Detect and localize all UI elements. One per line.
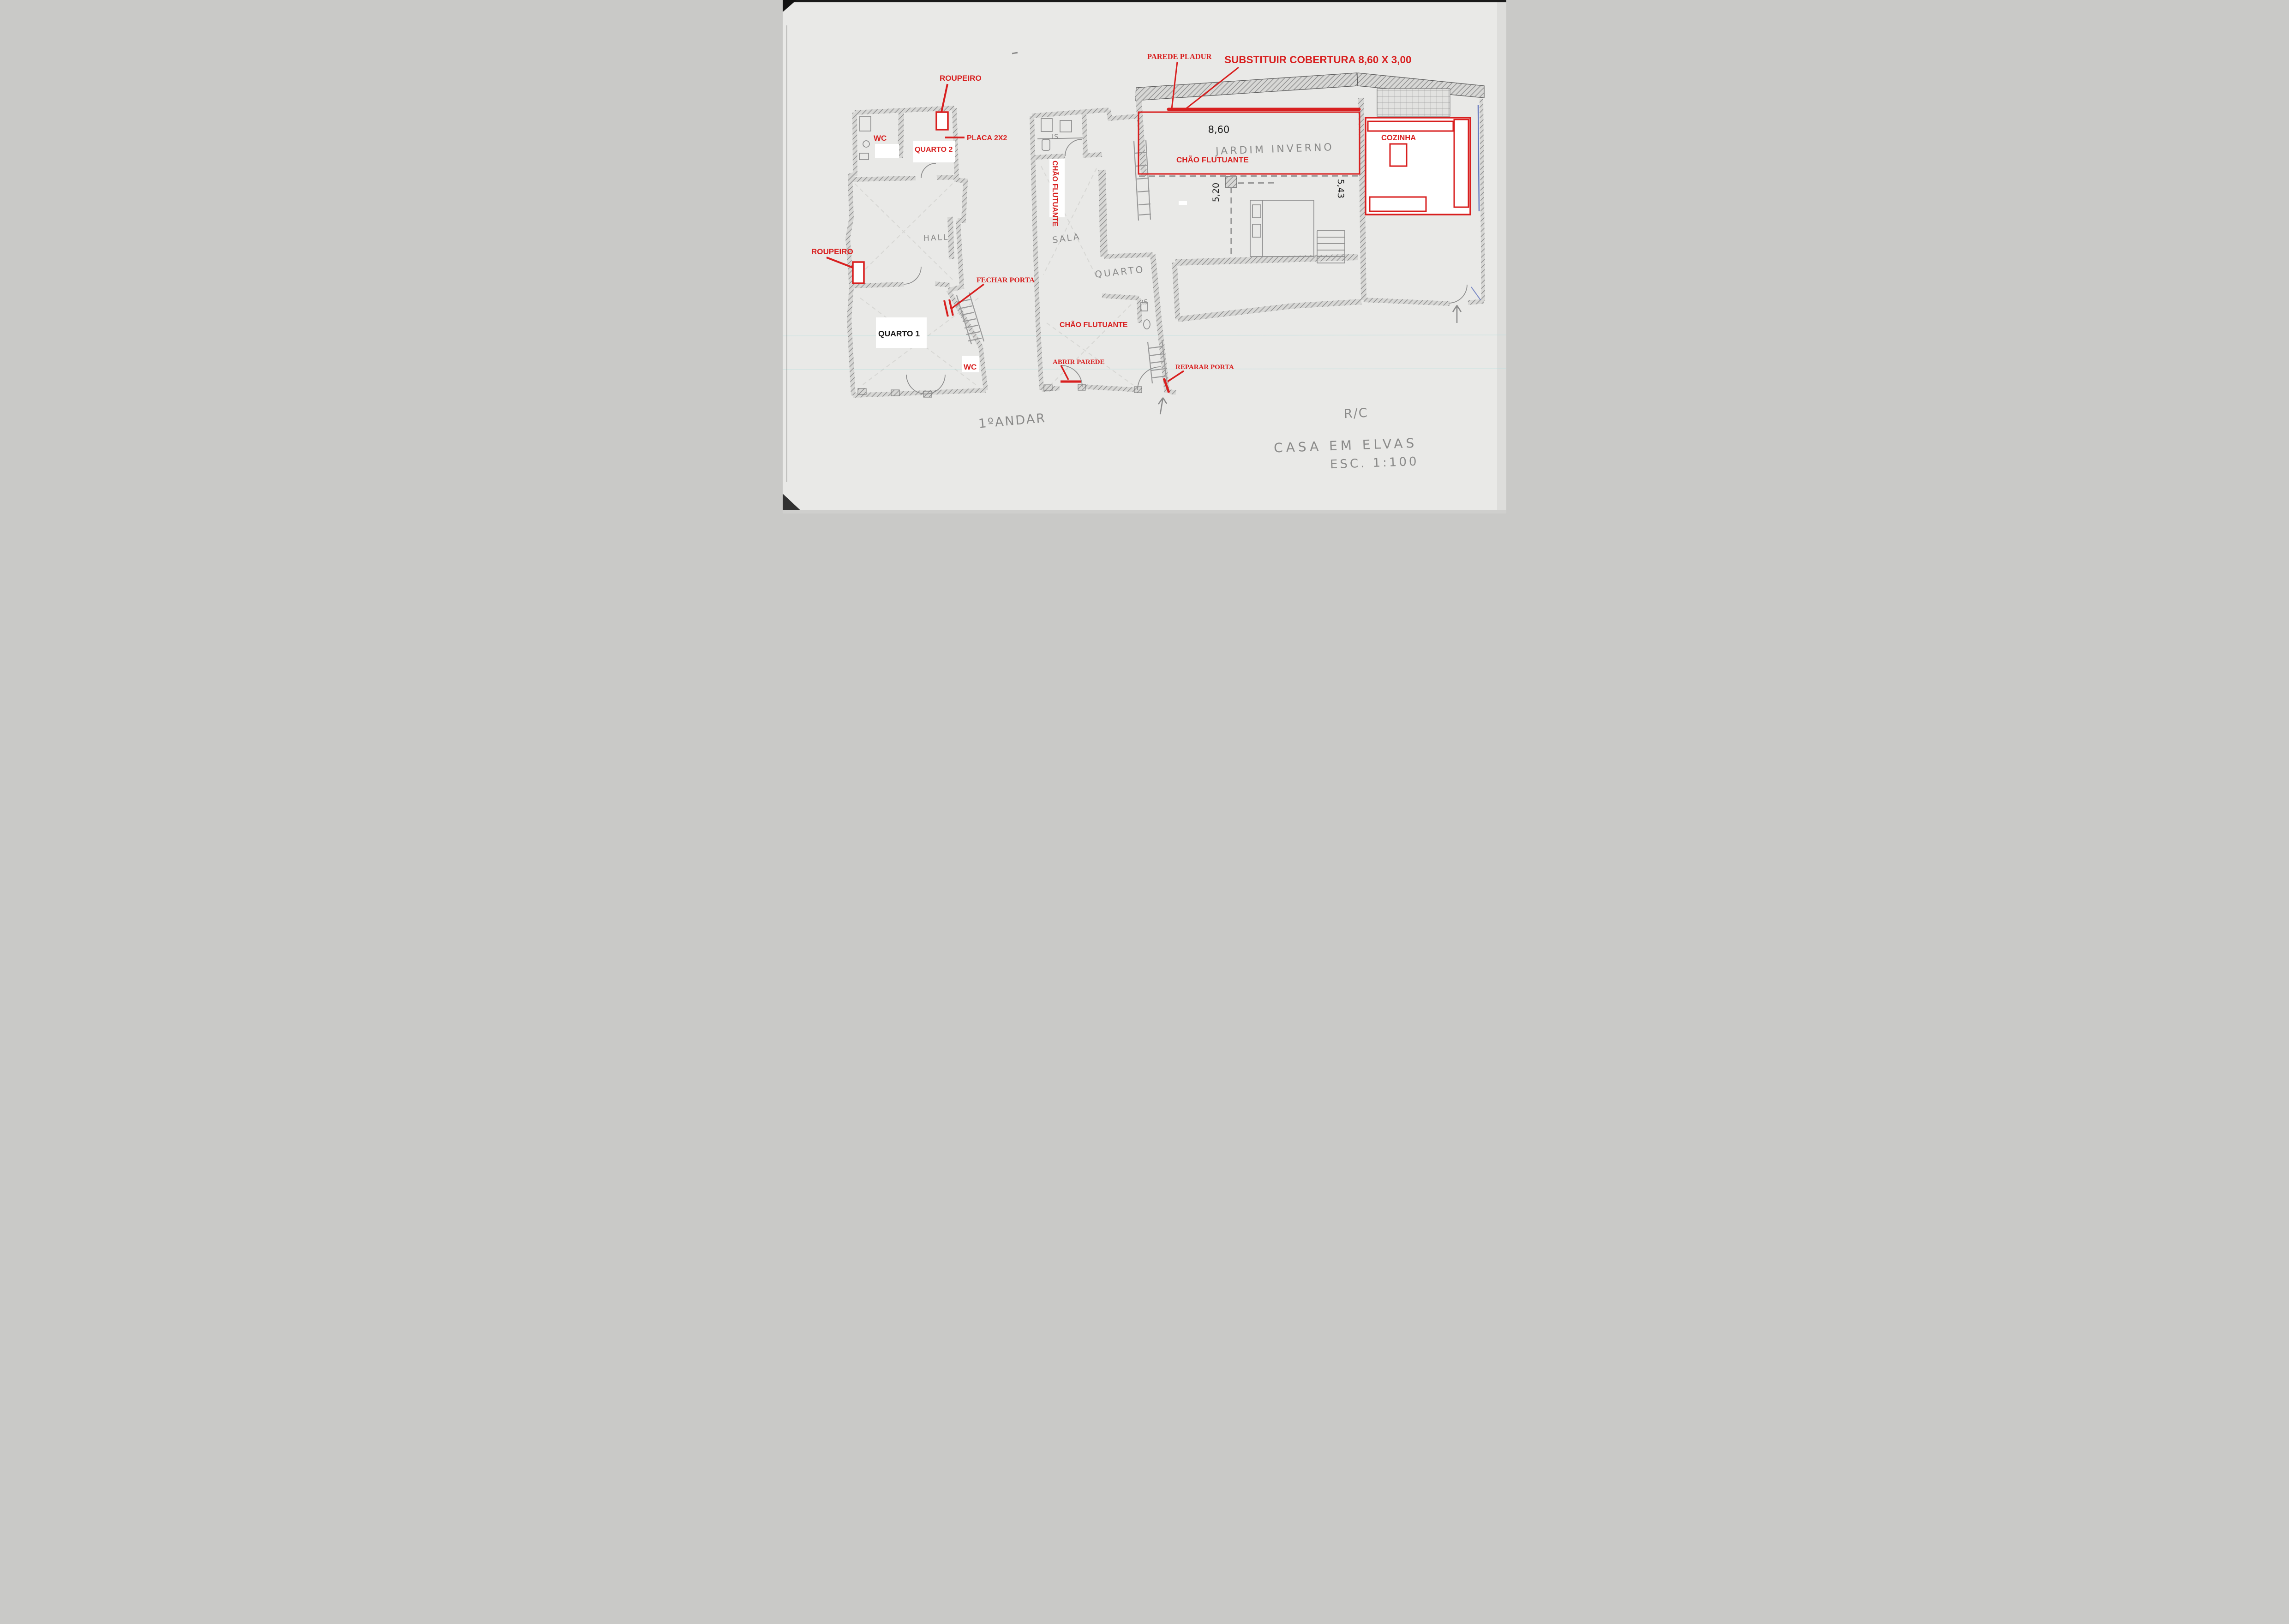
roupeiro-left-box	[853, 262, 864, 283]
hall-label: HALL	[923, 233, 949, 243]
quarto1-label: QUARTO 1	[878, 329, 920, 338]
wc-lower-label: WC	[964, 363, 977, 371]
chao-flutuante-jardim-label: CHÃO FLUTUANTE	[1176, 155, 1249, 164]
reparar-porta-label: REPARAR PORTA	[1175, 364, 1234, 371]
chao-flutuante-room-label: CHÃO FLUTUANTE	[1060, 320, 1128, 329]
is-mid-label: IS	[1141, 299, 1148, 307]
ground-title: R/C	[1343, 406, 1368, 422]
paper-right-edge	[1497, 0, 1506, 513]
roupeiro-top-label: ROUPEIRO	[940, 74, 982, 83]
abrir-parede-label: ABRIR PAREDE	[1053, 358, 1105, 366]
pencil-column	[1225, 177, 1237, 187]
parede-pladur-label: PAREDE PLADUR	[1147, 52, 1212, 61]
scanned-floor-plan-sketch: HALL IS SALA QUARTO IS JARDIM INVERNO 1º…	[783, 0, 1506, 513]
dim-8-60: 8,60	[1208, 124, 1230, 135]
roupeiro-top-box	[936, 112, 948, 130]
roupeiro-left-label: ROUPEIRO	[811, 247, 853, 256]
chao-flutuante-corridor-label: CHÃO FLUTUANTE	[1051, 161, 1059, 227]
wc-upper-label: WC	[874, 134, 887, 143]
pencil-tick-mark	[1012, 53, 1018, 54]
terrace-grid-area	[1377, 89, 1450, 116]
substituir-cobertura-label: SUBSTITUIR COBERTURA 8,60 X 3,00	[1224, 54, 1412, 66]
dim-5-43: 5,43	[1336, 179, 1346, 198]
dim-5-20: 5,20	[1211, 183, 1221, 202]
placa-label: PLACA 2X2	[967, 134, 1007, 142]
fechar-porta-label: FECHAR PORTA	[977, 276, 1035, 284]
is-top-label: IS	[1052, 133, 1059, 141]
plan-canvas: HALL IS SALA QUARTO IS JARDIM INVERNO 1º…	[783, 0, 1506, 513]
cozinha-red-layout: COZINHA	[1366, 118, 1470, 215]
quarto2-label: QUARTO 2	[915, 146, 953, 154]
cozinha-label: COZINHA	[1381, 134, 1416, 142]
